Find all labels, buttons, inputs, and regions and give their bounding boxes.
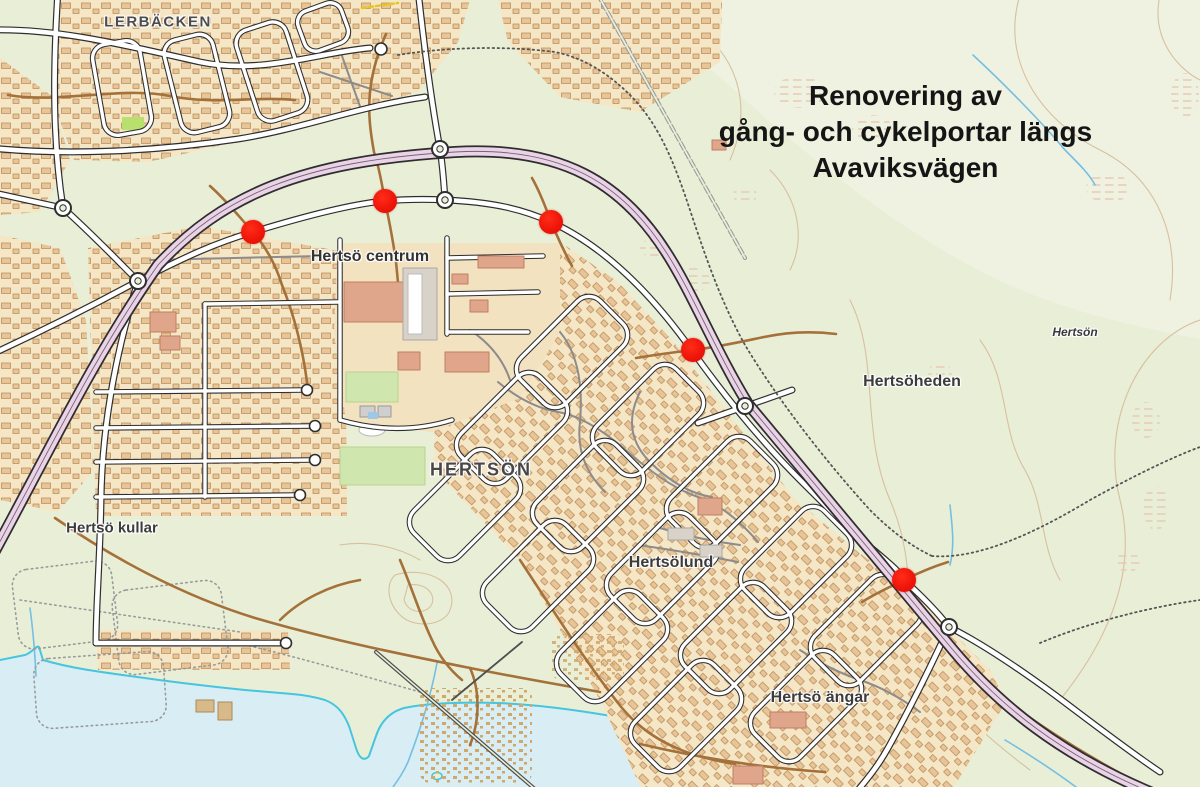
- label-hertso-centrum: Hertsö centrum: [311, 248, 429, 266]
- label-hertso-kullar: Hertsö kullar: [66, 520, 158, 537]
- map-title-line2: gång- och cykelportar längs: [633, 114, 1178, 150]
- renovation-site-2[interactable]: [373, 189, 397, 213]
- map-title: Renovering av gång- och cykelportar läng…: [633, 78, 1178, 186]
- map-stage: LERBÄCKEN Hertsö centrum Hertsön Hertsöh…: [0, 0, 1200, 787]
- renovation-site-1[interactable]: [241, 220, 265, 244]
- renovation-site-5[interactable]: [892, 568, 916, 592]
- map-title-line1: Renovering av: [633, 78, 1178, 114]
- renovation-site-4[interactable]: [681, 338, 705, 362]
- label-hertsoheden: Hertsöheden: [863, 373, 961, 391]
- renovation-site-3[interactable]: [539, 210, 563, 234]
- label-hertson-large: HERTSÖN: [430, 460, 532, 481]
- label-hertso-angar: Hertsö ängar: [771, 689, 870, 707]
- map-title-line3: Avaviksvägen: [633, 150, 1178, 186]
- label-hertson-small: Hertsön: [1052, 325, 1097, 339]
- label-hertsolund: Hertsölund: [629, 554, 713, 572]
- label-lerbacken: LERBÄCKEN: [104, 14, 212, 31]
